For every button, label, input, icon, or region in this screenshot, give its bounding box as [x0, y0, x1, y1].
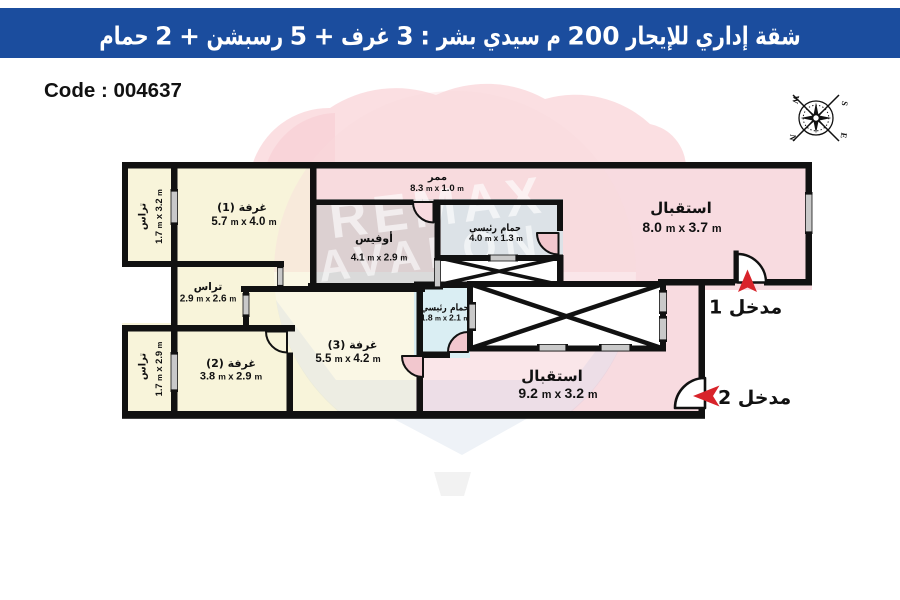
svg-text:8.0 m x 3.7 m: 8.0 m x 3.7 m: [642, 219, 721, 235]
svg-text:9.2 m x 3.2 m: 9.2 m x 3.2 m: [518, 385, 597, 401]
svg-text:4.0 m x 1.3 m: 4.0 m x 1.3 m: [469, 233, 523, 244]
svg-text:3.8 m x 2.9 m: 3.8 m x 2.9 m: [200, 371, 263, 383]
svg-text:Code : 004637: Code : 004637: [44, 79, 182, 102]
svg-text:5.5 m x 4.2 m: 5.5 m x 4.2 m: [315, 353, 380, 365]
svg-text:1.7 m x 2.9 m: 1.7 m x 2.9 m: [154, 341, 164, 396]
svg-text:8.3 m x 1.0 m: 8.3 m x 1.0 m: [410, 183, 464, 194]
svg-text:5.7 m x 4.0 m: 5.7 m x 4.0 m: [211, 216, 276, 228]
svg-text:1.7 m x 3.2 m: 1.7 m x 3.2 m: [154, 189, 164, 244]
svg-text:2.9 m x 2.6 m: 2.9 m x 2.6 m: [180, 294, 237, 305]
svg-text:4.1 m x 2.9 m: 4.1 m x 2.9 m: [351, 253, 408, 264]
svg-text:1.8 m x 2.1 m: 1.8 m x 2.1 m: [421, 313, 470, 323]
